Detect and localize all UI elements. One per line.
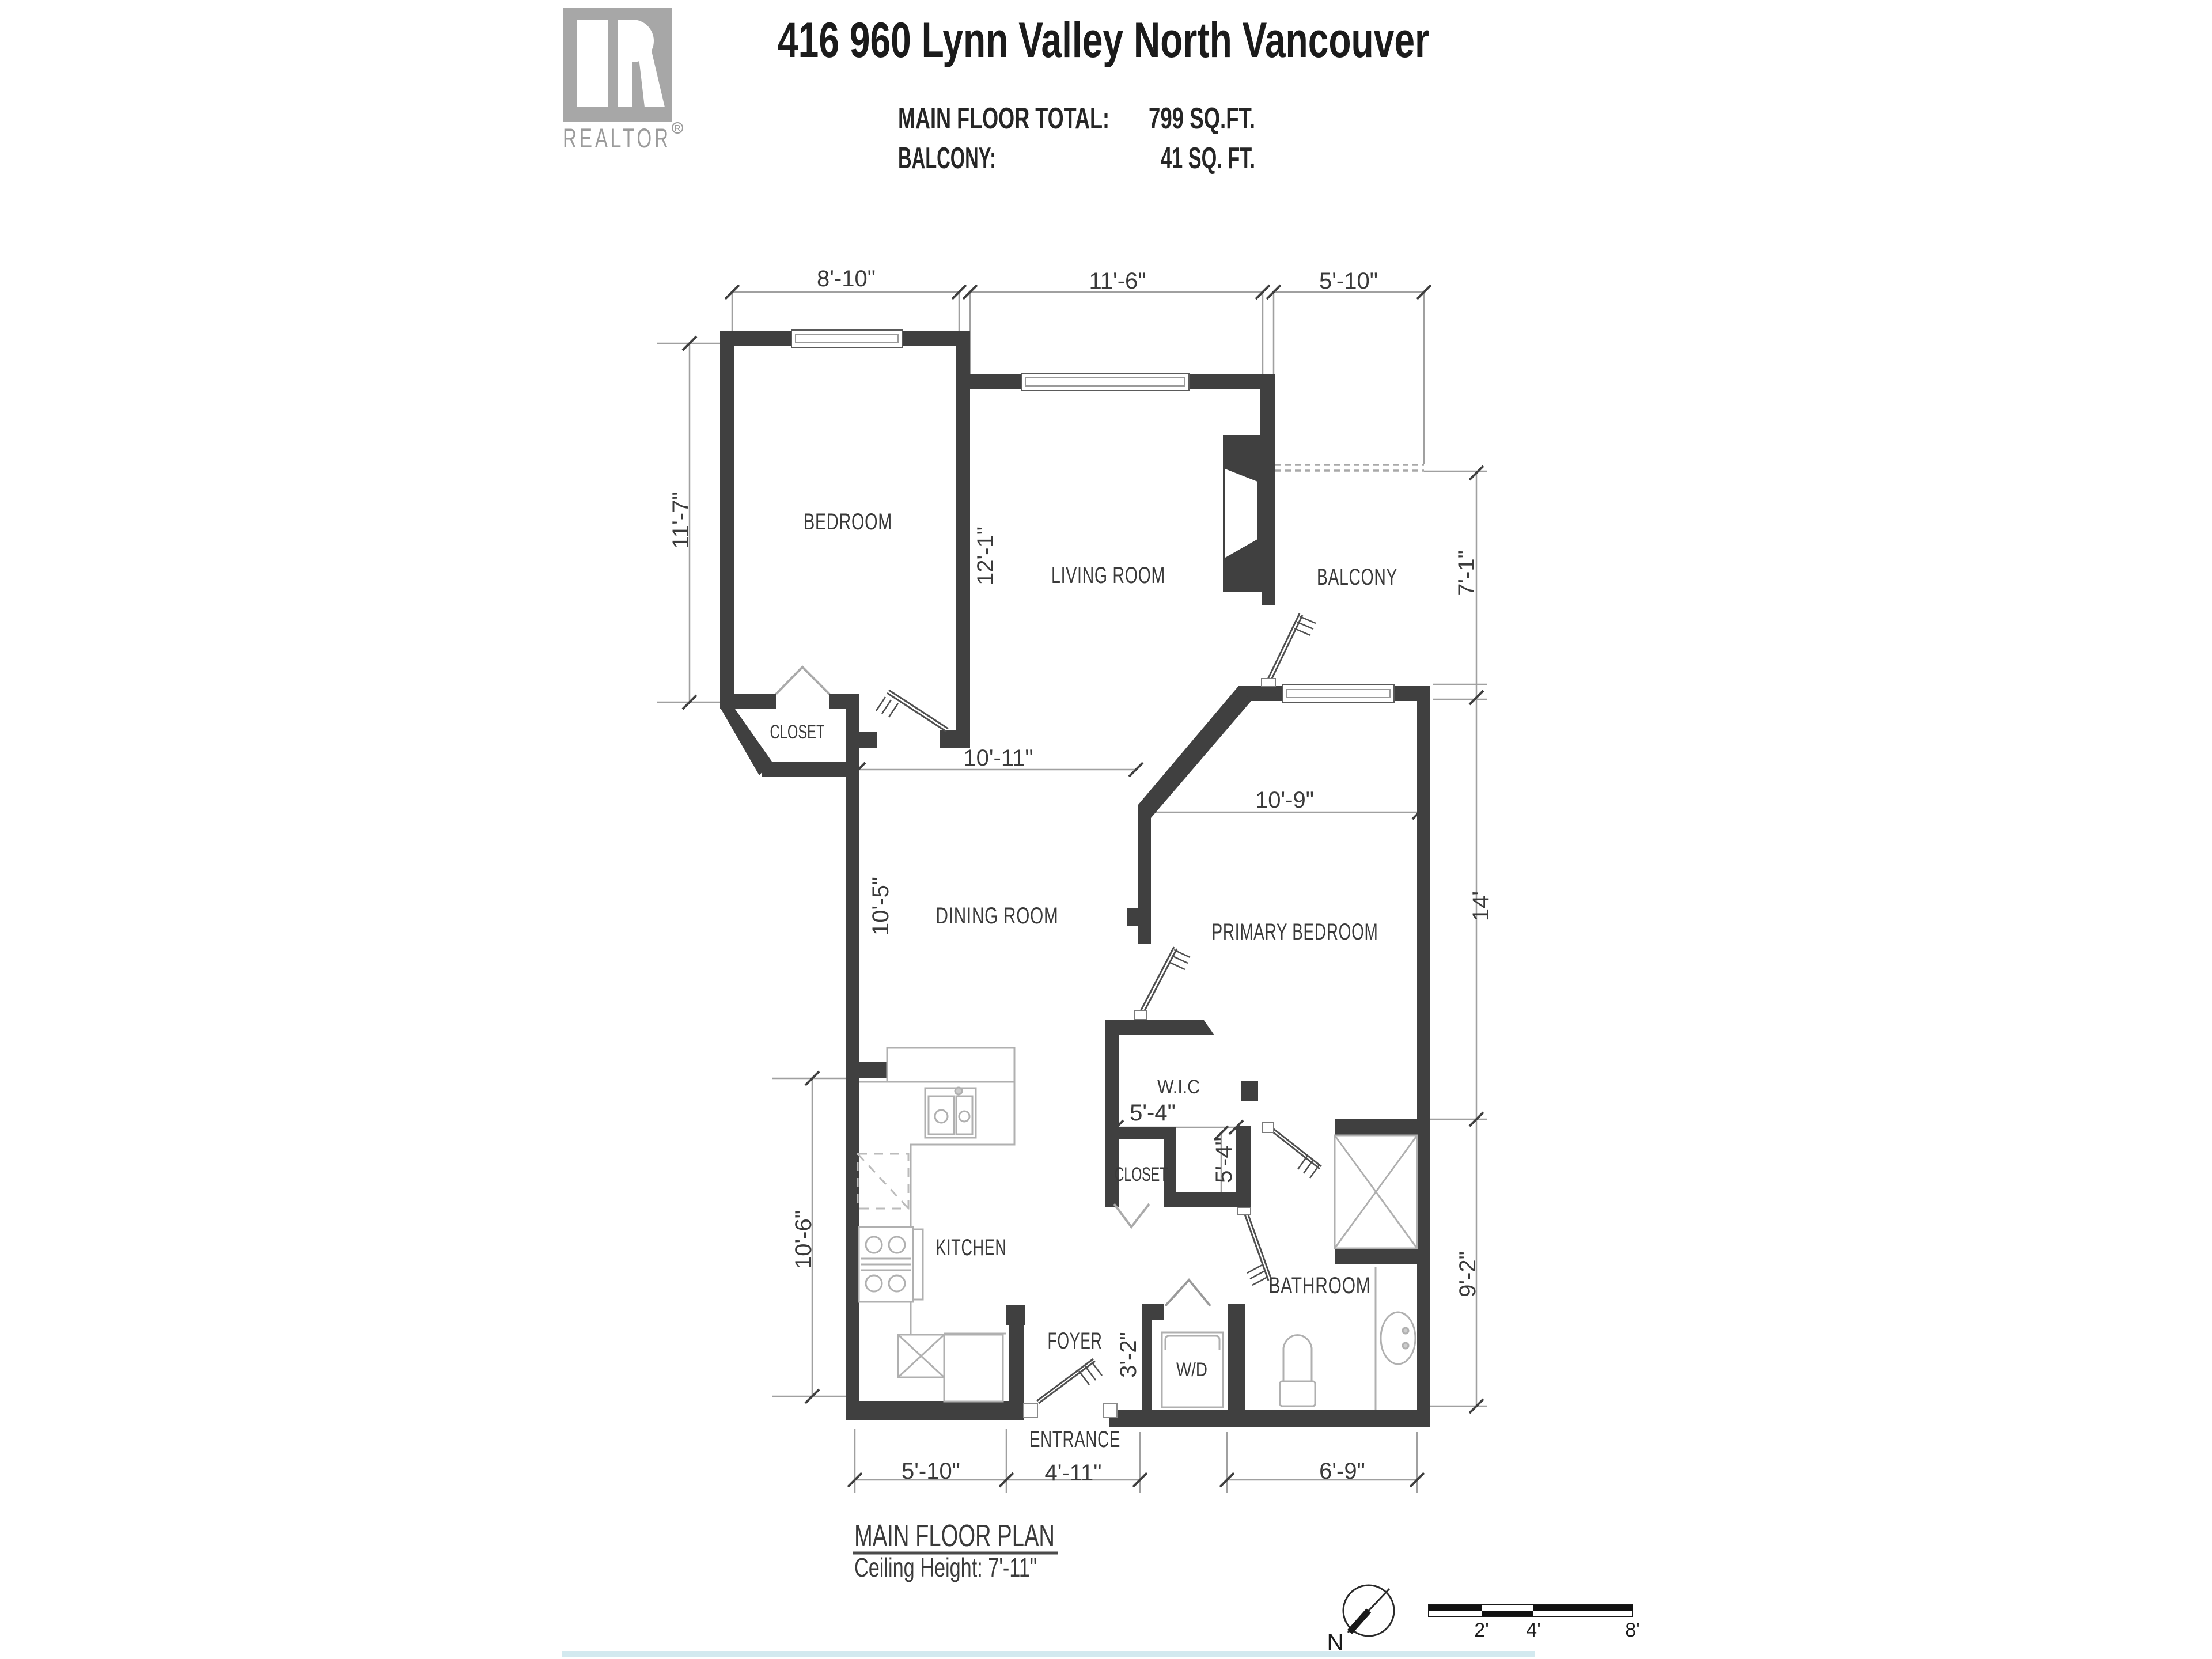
svg-text:41 SQ. FT.: 41 SQ. FT. <box>1161 142 1255 175</box>
svg-text:14': 14' <box>1468 891 1494 921</box>
svg-text:BALCONY:: BALCONY: <box>898 142 996 175</box>
svg-text:BATHROOM: BATHROOM <box>1269 1273 1371 1298</box>
svg-text:5'-4": 5'-4" <box>1211 1137 1237 1183</box>
svg-text:BALCONY: BALCONY <box>1317 565 1397 590</box>
svg-text:DINING ROOM: DINING ROOM <box>936 903 1059 929</box>
svg-text:10'-6": 10'-6" <box>791 1210 816 1269</box>
svg-text:N: N <box>1327 1630 1344 1655</box>
svg-text:R: R <box>674 124 681 134</box>
svg-text:BEDROOM: BEDROOM <box>804 509 892 535</box>
svg-text:MAIN FLOOR PLAN: MAIN FLOOR PLAN <box>854 1518 1055 1553</box>
svg-text:LIVING ROOM: LIVING ROOM <box>1051 563 1165 588</box>
svg-text:W/D: W/D <box>1176 1359 1207 1381</box>
svg-text:5'-4": 5'-4" <box>1130 1100 1176 1126</box>
svg-text:9'-2": 9'-2" <box>1455 1251 1480 1297</box>
svg-text:10'-5": 10'-5" <box>868 877 893 935</box>
svg-text:7'-1": 7'-1" <box>1454 550 1479 596</box>
svg-text:3'-2": 3'-2" <box>1116 1332 1141 1378</box>
svg-text:11'-7": 11'-7" <box>668 492 694 549</box>
svg-text:KITCHEN: KITCHEN <box>936 1235 1007 1260</box>
svg-text:10'-9": 10'-9" <box>1255 787 1314 813</box>
svg-text:8': 8' <box>1625 1619 1639 1641</box>
svg-text:CLOSET: CLOSET <box>770 721 825 743</box>
svg-text:MAIN FLOOR TOTAL:: MAIN FLOOR TOTAL: <box>898 102 1109 135</box>
svg-text:2': 2' <box>1474 1619 1488 1641</box>
svg-text:Ceiling Height: 7'-11": Ceiling Height: 7'-11" <box>854 1552 1037 1582</box>
svg-text:4'-11": 4'-11" <box>1045 1460 1102 1486</box>
svg-text:11'-6": 11'-6" <box>1089 268 1146 294</box>
svg-text:ENTRANCE: ENTRANCE <box>1029 1427 1120 1452</box>
svg-text:4': 4' <box>1526 1619 1540 1641</box>
svg-text:799 SQ.FT.: 799 SQ.FT. <box>1149 102 1255 135</box>
svg-text:10'-11": 10'-11" <box>963 745 1033 771</box>
svg-text:5'-10": 5'-10" <box>902 1459 960 1484</box>
svg-text:PRIMARY BEDROOM: PRIMARY BEDROOM <box>1212 919 1378 945</box>
svg-text:416 960 Lynn Valley North Vanc: 416 960 Lynn Valley North Vancouver <box>778 13 1429 68</box>
svg-text:12'-1": 12'-1" <box>973 527 998 585</box>
svg-text:REALTOR: REALTOR <box>563 123 671 153</box>
svg-text:CLOSET: CLOSET <box>1115 1164 1168 1185</box>
svg-text:W.I.C: W.I.C <box>1157 1076 1200 1098</box>
svg-text:6'-9": 6'-9" <box>1319 1459 1365 1484</box>
svg-text:5'-10": 5'-10" <box>1319 268 1378 294</box>
svg-text:FOYER: FOYER <box>1048 1328 1103 1354</box>
svg-text:8'-10": 8'-10" <box>817 266 876 291</box>
